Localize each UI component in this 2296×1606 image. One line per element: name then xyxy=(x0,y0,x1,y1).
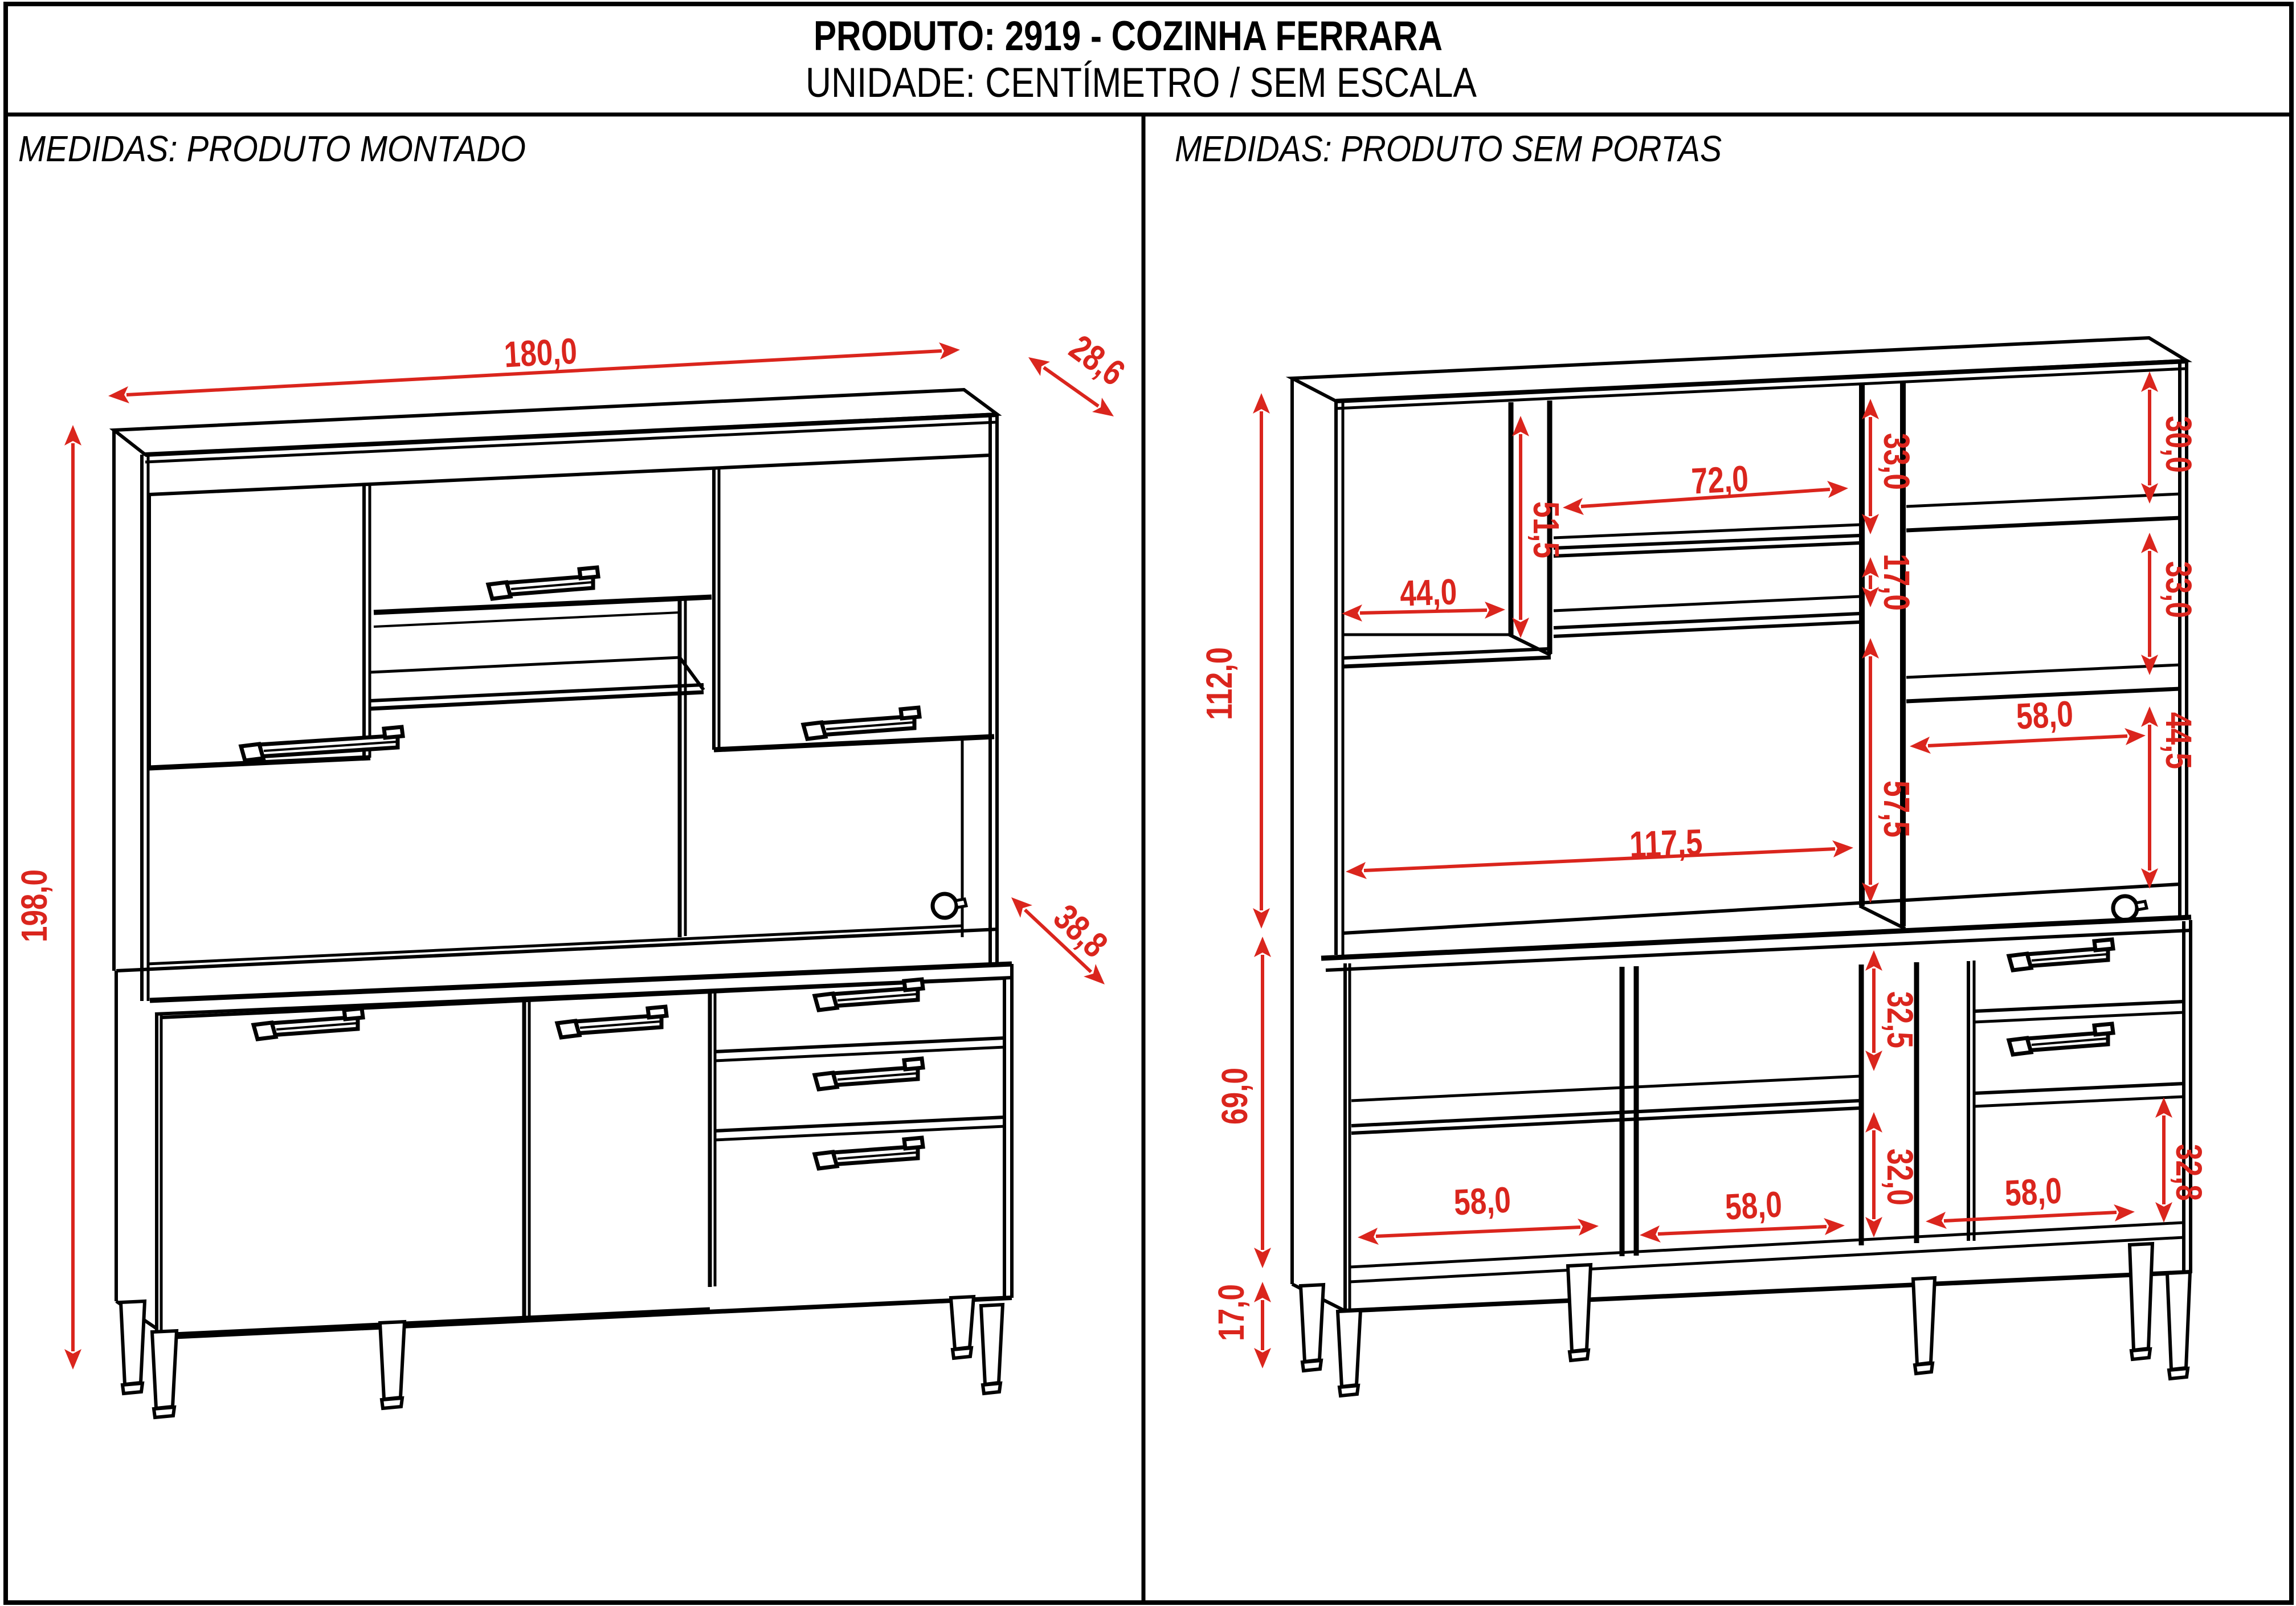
svg-text:17,0: 17,0 xyxy=(1211,1284,1252,1341)
svg-text:44,0: 44,0 xyxy=(1399,571,1457,614)
svg-text:72,0: 72,0 xyxy=(1690,457,1750,501)
svg-text:58,0: 58,0 xyxy=(1453,1179,1512,1223)
svg-text:33,0: 33,0 xyxy=(1876,433,1917,490)
svg-text:51,5: 51,5 xyxy=(1526,501,1567,558)
svg-text:58,0: 58,0 xyxy=(2004,1170,2063,1213)
svg-text:UNIDADE: CENTÍMETRO / SEM ESCA: UNIDADE: CENTÍMETRO / SEM ESCALA xyxy=(806,60,1477,106)
svg-text:MEDIDAS: PRODUTO SEM PORTAS: MEDIDAS: PRODUTO SEM PORTAS xyxy=(1175,128,1722,169)
svg-text:58,0: 58,0 xyxy=(1724,1183,1783,1227)
svg-text:32,8: 32,8 xyxy=(2168,1144,2209,1201)
svg-text:44,5: 44,5 xyxy=(2158,712,2199,769)
svg-text:PRODUTO: 2919 - COZINHA FERRAR: PRODUTO: 2919 - COZINHA FERRARA xyxy=(814,13,1443,59)
svg-text:69,0: 69,0 xyxy=(1214,1068,1255,1125)
svg-text:198,0: 198,0 xyxy=(14,869,55,942)
svg-text:32,5: 32,5 xyxy=(1880,991,1921,1048)
svg-text:58,0: 58,0 xyxy=(2015,693,2074,737)
svg-text:180,0: 180,0 xyxy=(503,330,578,375)
svg-text:30,0: 30,0 xyxy=(2158,416,2199,473)
svg-text:33,0: 33,0 xyxy=(2158,561,2199,618)
svg-text:112,0: 112,0 xyxy=(1199,647,1240,720)
svg-text:17,0: 17,0 xyxy=(1876,554,1917,611)
svg-text:57,5: 57,5 xyxy=(1876,780,1917,837)
svg-text:117,5: 117,5 xyxy=(1629,822,1703,865)
svg-text:32,0: 32,0 xyxy=(1880,1149,1921,1205)
svg-text:MEDIDAS: PRODUTO MONTADO: MEDIDAS: PRODUTO MONTADO xyxy=(18,128,526,169)
